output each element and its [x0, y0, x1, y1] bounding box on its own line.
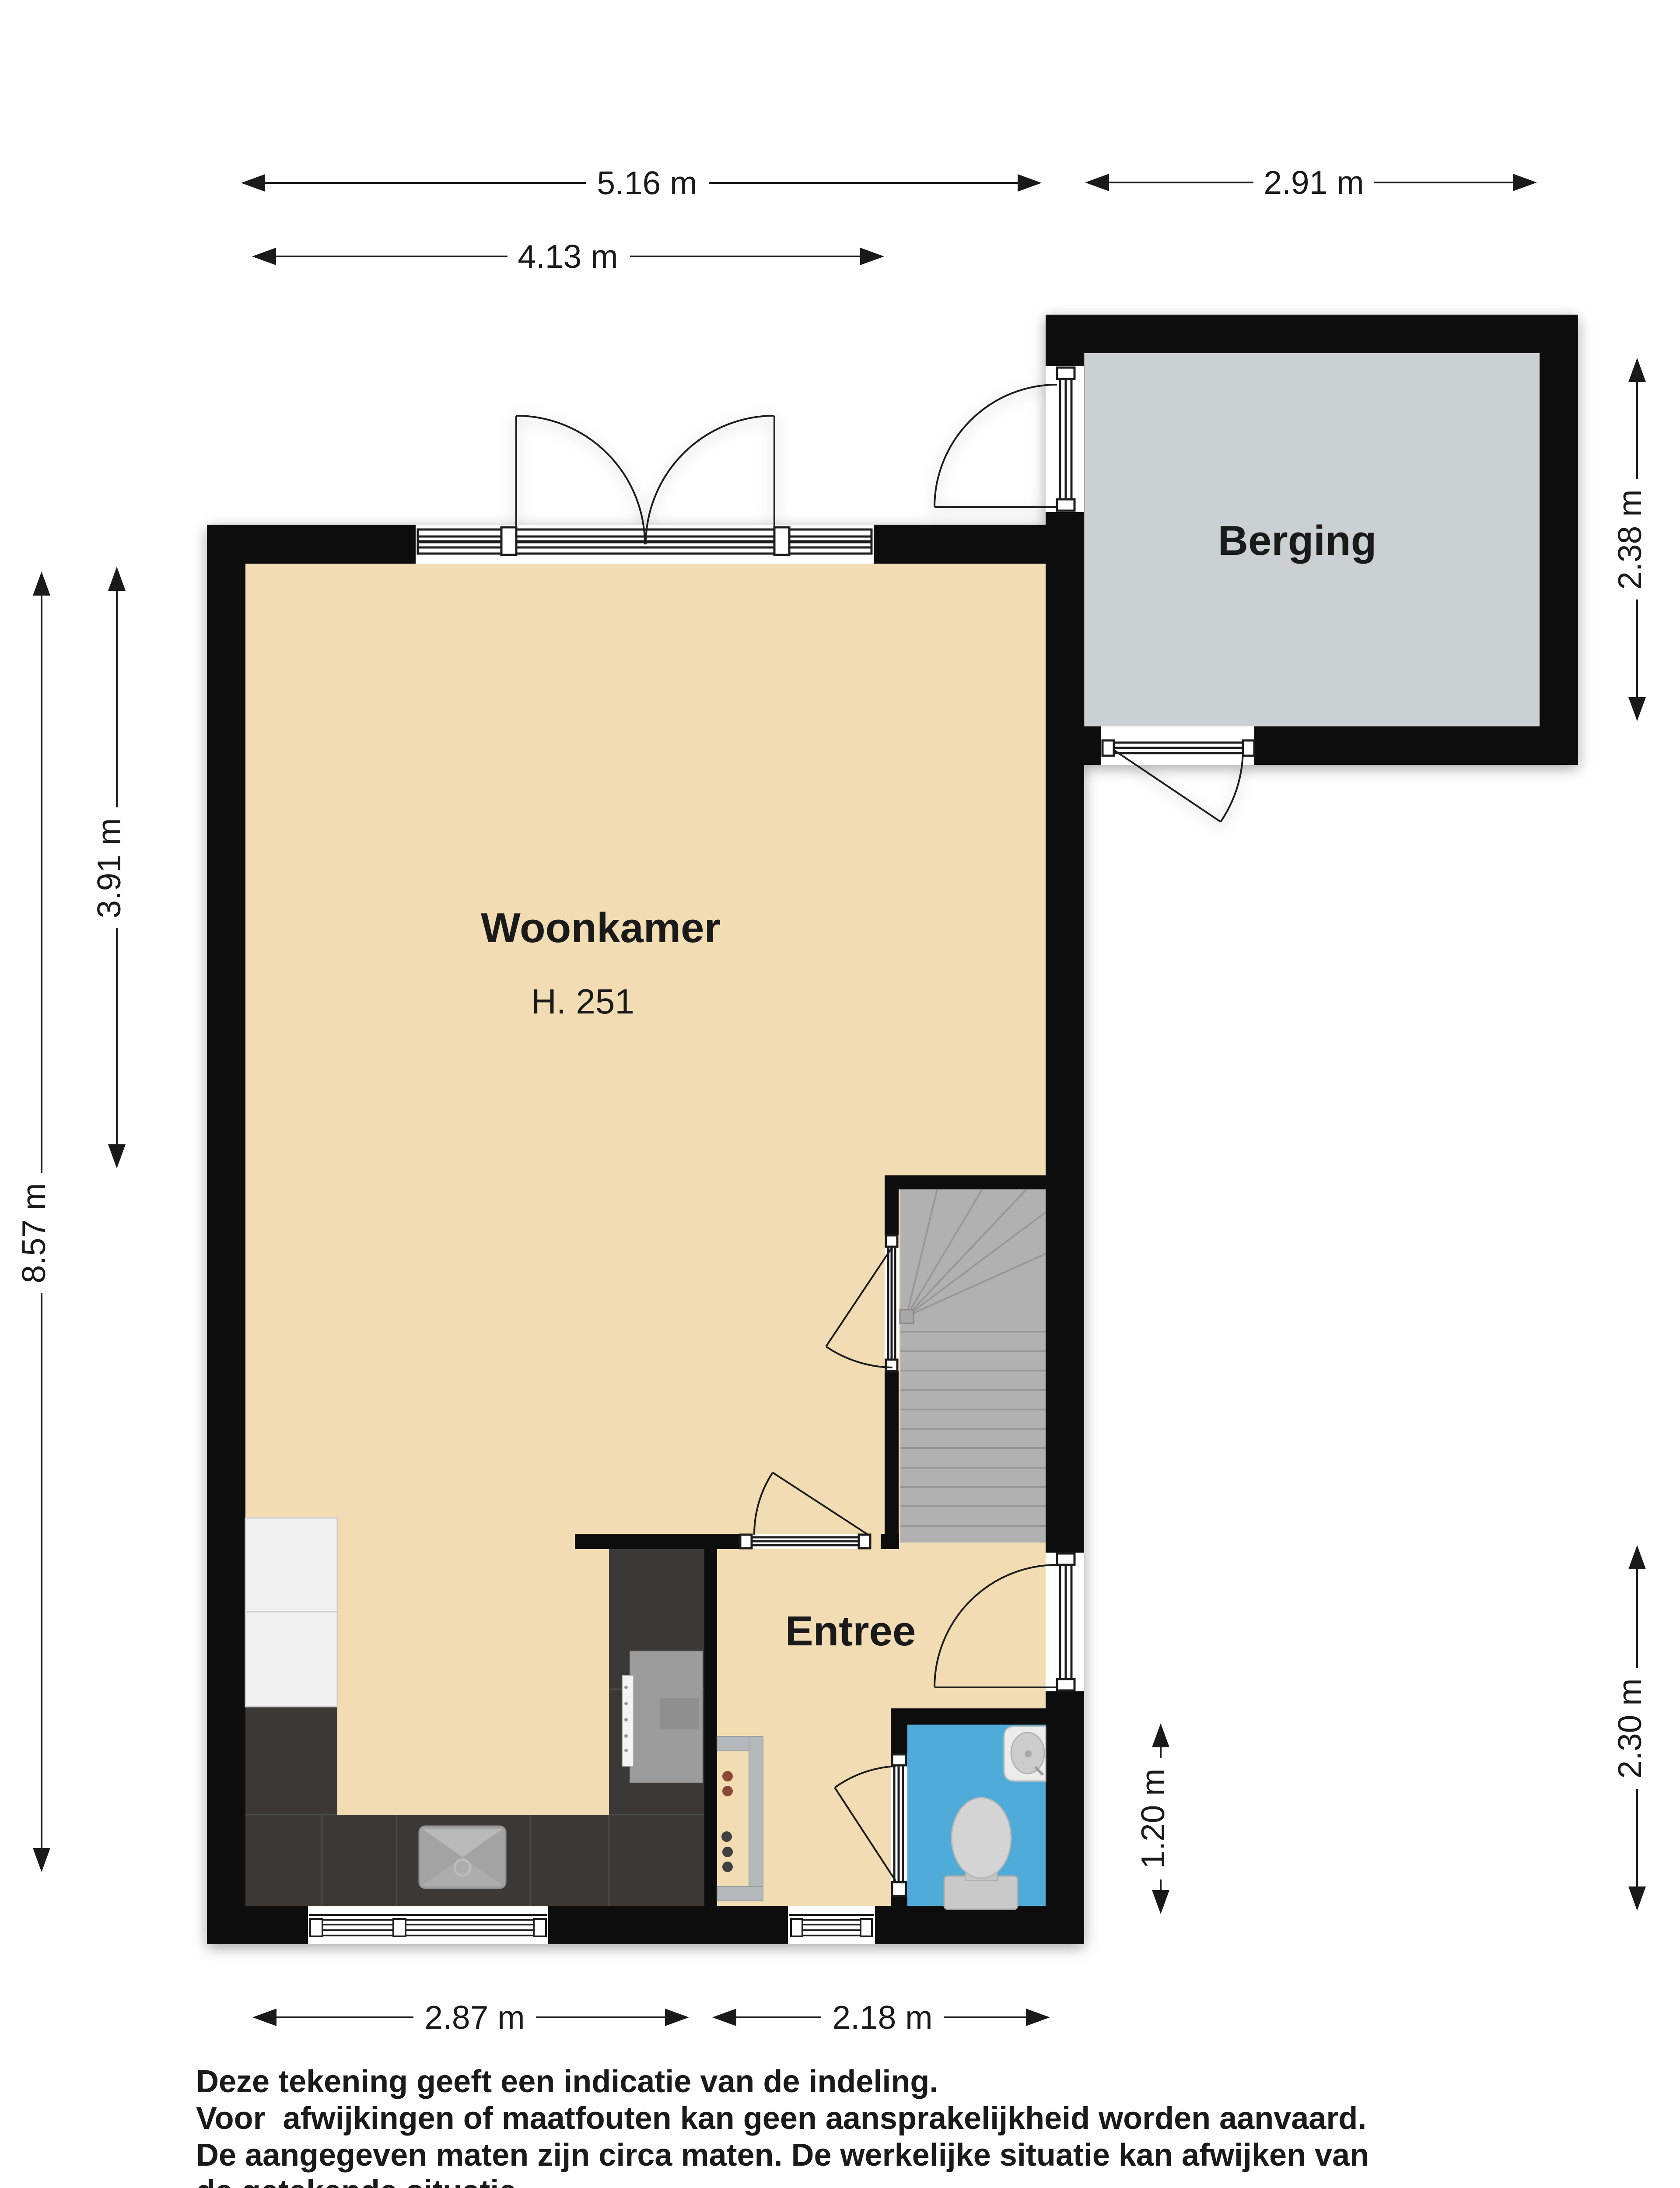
svg-text:5.16 m: 5.16 m — [597, 165, 697, 201]
svg-text:8.57 m: 8.57 m — [15, 1183, 52, 1283]
svg-text:H. 251: H. 251 — [531, 982, 634, 1021]
svg-text:4.13 m: 4.13 m — [518, 238, 618, 275]
svg-text:2.30 m: 2.30 m — [1611, 1678, 1648, 1778]
svg-text:2.38 m: 2.38 m — [1611, 489, 1648, 589]
svg-text:3.91 m: 3.91 m — [91, 818, 127, 918]
svg-text:1.20 m: 1.20 m — [1134, 1768, 1171, 1869]
svg-text:2.91 m: 2.91 m — [1263, 164, 1364, 201]
svg-text:Entree: Entree — [785, 1608, 916, 1655]
svg-text:Voor afwijkingen of maatfoute: Voor afwijkingen of maatfouten kan geen … — [196, 2101, 1366, 2136]
svg-text:2.87 m: 2.87 m — [424, 1999, 525, 2036]
svg-text:de getekende situatie.: de getekende situatie. — [196, 2174, 525, 2188]
svg-text:Deze tekening geeft een indica: Deze tekening geeft een indicatie van de… — [196, 2064, 938, 2099]
svg-text:Berging: Berging — [1218, 517, 1377, 564]
svg-text:De aangegeven maten zijn circa: De aangegeven maten zijn circa maten. De… — [196, 2138, 1369, 2173]
svg-text:Woonkamer: Woonkamer — [481, 905, 721, 951]
svg-text:2.18 m: 2.18 m — [832, 1999, 932, 2036]
